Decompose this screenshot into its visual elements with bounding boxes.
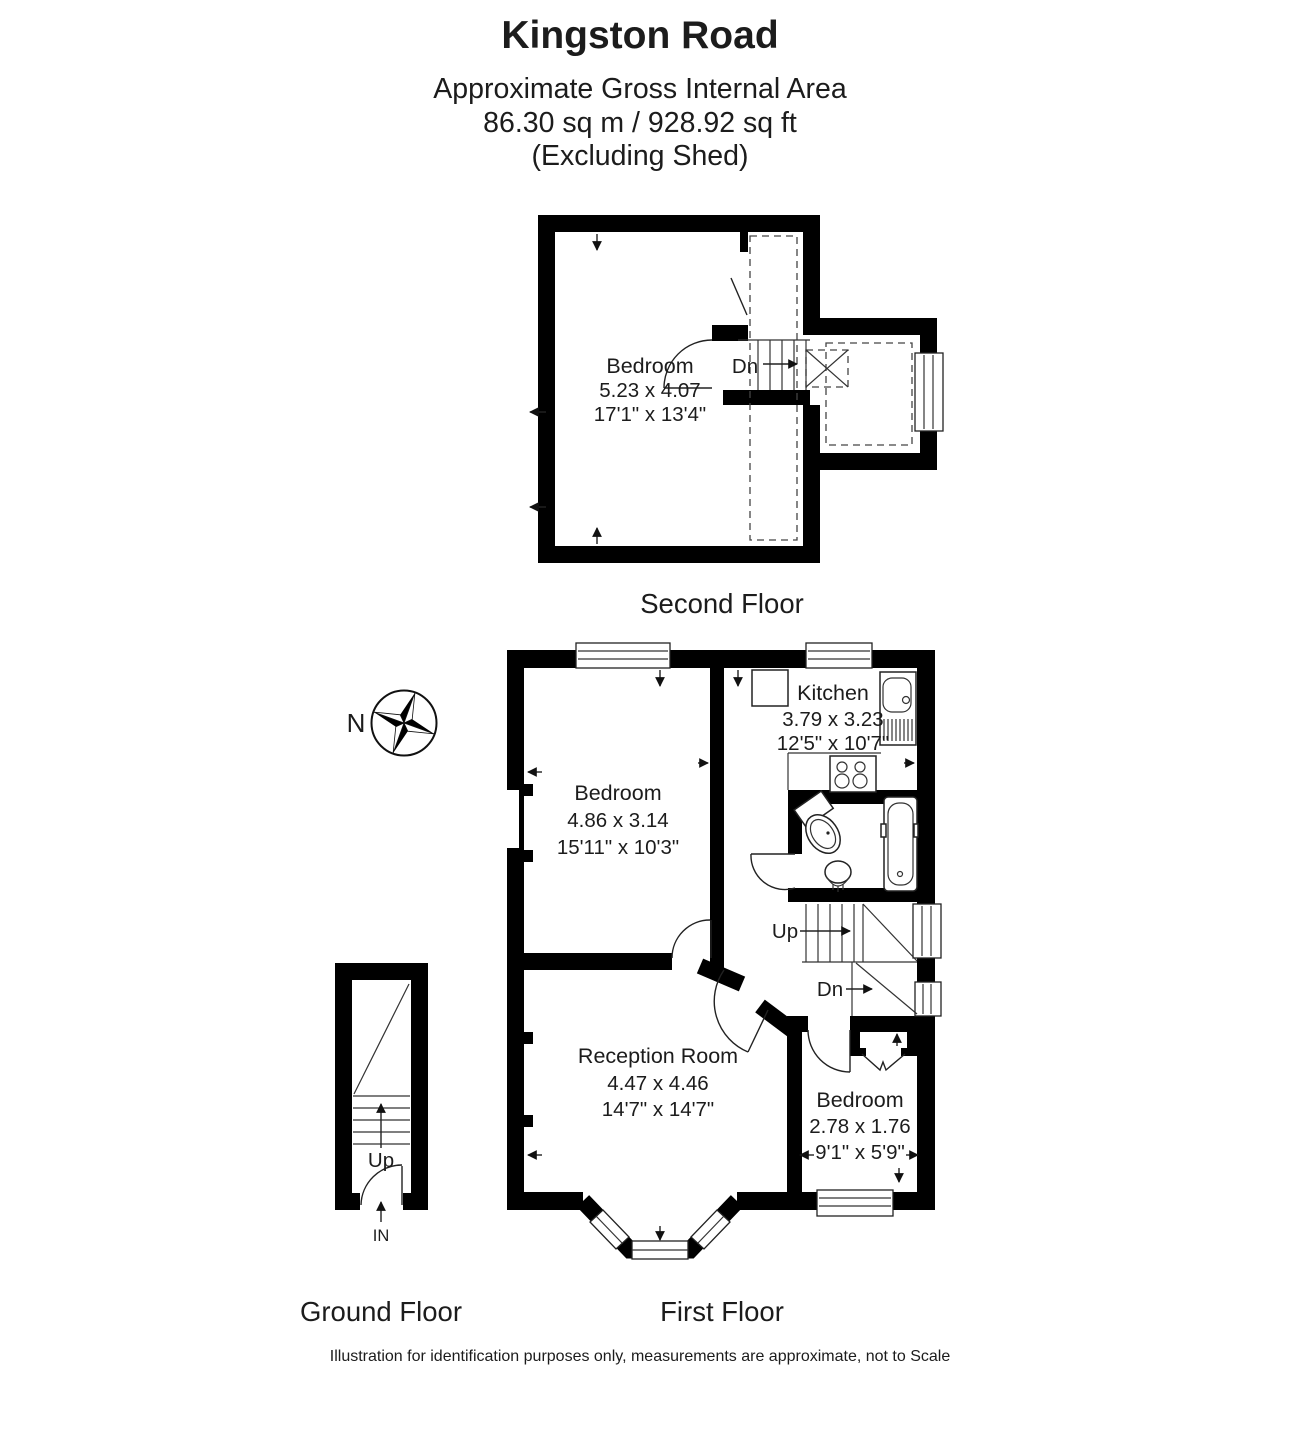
reception-imperial: 14'7" x 14'7" xyxy=(602,1098,714,1121)
page-title: Kingston Road xyxy=(501,14,778,57)
compass-north-label: N xyxy=(347,708,366,738)
hob-icon xyxy=(830,756,876,792)
ground-floor-title: Ground Floor xyxy=(300,1296,462,1327)
floorplan-drawing: Kingston Road Approximate Gross Internal… xyxy=(0,0,1295,1434)
second-floor-walls xyxy=(538,215,937,563)
kitchen-window xyxy=(806,643,872,668)
compass-rose-icon: N xyxy=(347,691,437,756)
first-floor-plan: Kitchen 3.79 x 3.23 12'5" x 10'7" Bedroo… xyxy=(507,643,941,1327)
ground-floor-walls xyxy=(335,963,428,1210)
page-area: 86.30 sq m / 928.92 sq ft xyxy=(483,107,797,139)
bedroom1-name: Bedroom xyxy=(574,781,661,805)
ground-stairs-up-label: Up xyxy=(368,1149,394,1172)
bathroom-fittings xyxy=(794,791,918,892)
stair-window xyxy=(913,904,941,958)
second-bedroom-metric: 5.23 x 4.07 xyxy=(599,379,700,402)
bedroom1-metric: 4.86 x 3.14 xyxy=(567,809,668,832)
bedroom2-folding-door xyxy=(862,1054,905,1070)
second-floor-dashed-outlines xyxy=(750,236,912,540)
second-floor-window xyxy=(915,353,943,431)
first-stairs-up-label: Up xyxy=(772,920,798,943)
page-exclusion: (Excluding Shed) xyxy=(531,140,748,172)
appliance-icon xyxy=(752,670,788,706)
toilet-icon xyxy=(825,861,851,892)
floorplan-page: Kingston Road Approximate Gross Internal… xyxy=(0,0,1295,1434)
rooflight-icon xyxy=(806,350,848,387)
entrance-door xyxy=(361,1165,402,1222)
page-subtitle: Approximate Gross Internal Area xyxy=(433,73,847,105)
disclaimer-text: Illustration for identification purposes… xyxy=(330,1348,951,1365)
reception-name: Reception Room xyxy=(578,1044,738,1068)
kitchen-imperial: 12'5" x 10'7" xyxy=(777,732,889,755)
second-bedroom-imperial: 17'1" x 13'4" xyxy=(594,403,706,426)
ground-floor-stairs xyxy=(353,984,410,1148)
entrance-label: IN xyxy=(373,1227,390,1245)
bedroom2-window xyxy=(817,1190,893,1216)
second-stairs-down-label: Dn xyxy=(732,355,758,378)
reception-metric: 4.47 x 4.46 xyxy=(607,1072,708,1095)
bedroom1-imperial: 15'11" x 10'3" xyxy=(557,836,679,859)
first-floor-title: First Floor xyxy=(660,1296,784,1327)
first-stairs-down-label: Dn xyxy=(817,978,843,1001)
kitchen-metric: 3.79 x 3.23 xyxy=(782,708,883,731)
bedroom2-imperial: 9'1" x 5'9" xyxy=(815,1141,905,1164)
ground-floor-plan: Up IN Ground Floor xyxy=(300,963,462,1327)
closet-door-leaf xyxy=(731,278,747,315)
bedroom2-metric: 2.78 x 1.76 xyxy=(809,1115,910,1138)
bedroom2-name: Bedroom xyxy=(816,1088,903,1112)
second-floor-title: Second Floor xyxy=(640,588,804,619)
bedroom-window xyxy=(576,643,670,668)
landing-window xyxy=(915,982,941,1016)
second-bedroom-name: Bedroom xyxy=(606,354,693,378)
kitchen-name: Kitchen xyxy=(797,681,869,705)
bathtub-icon xyxy=(881,797,918,891)
title-block: Kingston Road Approximate Gross Internal… xyxy=(433,14,847,172)
second-floor-plan: Bedroom 5.23 x 4.07 17'1" x 13'4" Dn Sec… xyxy=(530,215,943,619)
